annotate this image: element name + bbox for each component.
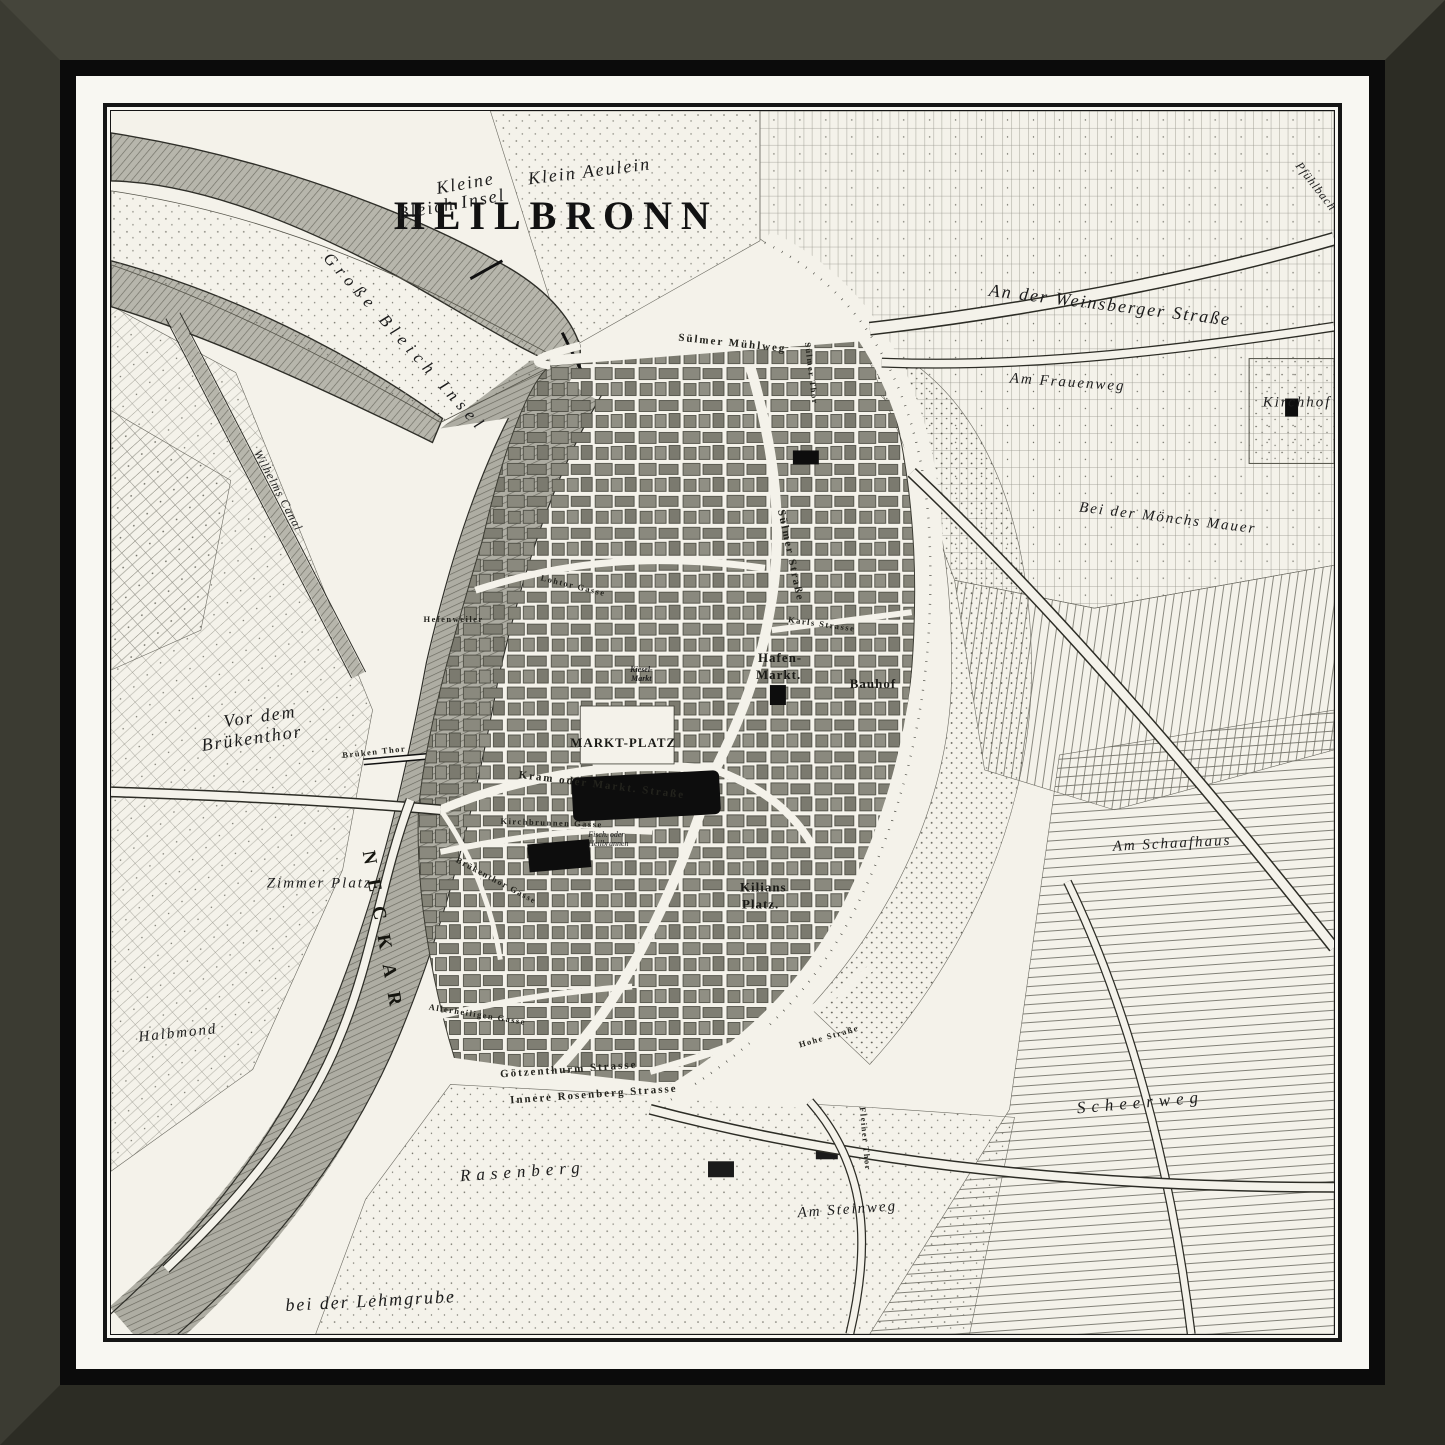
label-zimmer-platz: Zimmer Platz — [267, 876, 372, 892]
map-artwork: HEILBRONN Kleine Bleich Insel Klein Aeul… — [111, 111, 1334, 1334]
frame-inner-lip: HEILBRONN Kleine Bleich Insel Klein Aeul… — [60, 60, 1385, 1385]
label-heilbrunnen-1: Fisch. oder — [587, 830, 625, 839]
map-border-inner: HEILBRONN Kleine Bleich Insel Klein Aeul… — [110, 110, 1335, 1335]
label-bauhof: Bauhof — [850, 676, 896, 691]
label-kilians-1: Kilians — [740, 880, 787, 895]
map-border-outer: HEILBRONN Kleine Bleich Insel Klein Aeul… — [103, 103, 1342, 1342]
label-hafen-markt-2: Markt. — [756, 667, 801, 682]
label-heilbrunnen-2: Heilbrunnen — [587, 839, 628, 848]
label-kilians-2: Platz. — [742, 897, 779, 912]
label-hafen-markt-1: Hafen- — [758, 650, 802, 665]
church-building — [527, 839, 591, 872]
picture-frame: HEILBRONN Kleine Bleich Insel Klein Aeul… — [0, 0, 1445, 1445]
label-hefenweiler: Hefenweiler — [423, 614, 483, 624]
map-canvas: HEILBRONN Kleine Bleich Insel Klein Aeul… — [111, 111, 1334, 1334]
label-kiesel-markt-2: Markt — [630, 674, 652, 683]
label-kirchhof: Kirchhof — [1262, 395, 1332, 411]
label-kiesel-markt-1: Kiesel- — [629, 665, 653, 674]
label-markt-platz: MARKT-PLATZ — [570, 735, 676, 750]
mat-board: HEILBRONN Kleine Bleich Insel Klein Aeul… — [76, 76, 1369, 1369]
